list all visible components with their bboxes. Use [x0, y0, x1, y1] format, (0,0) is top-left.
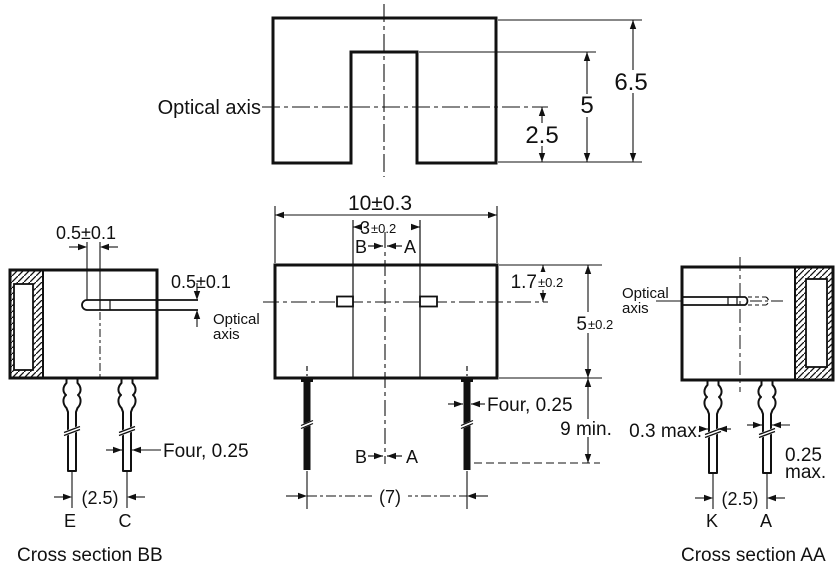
label-b-bottom: B [355, 447, 367, 467]
front-view-body-outline [275, 265, 497, 378]
front-view-extension-lines [275, 206, 602, 509]
photomicrosensor-dimension-drawing: Optical axis 6.5 5 2.5 10±0.3 [0, 0, 840, 573]
pin-label-e: E [64, 511, 76, 531]
cross-section-aa: Optical axis 0.3 max. 0.25 max. (2.5) K … [622, 257, 833, 566]
label-a-bottom: A [406, 447, 418, 467]
cross-section-bb: 0.5±0.1 0.5±0.1 Optical axis Four, 0.25 … [10, 223, 260, 566]
pin-label-a: A [760, 511, 772, 531]
aperture-tab-right [420, 297, 437, 307]
section-bb-window [14, 284, 33, 370]
section-bb-lead-pitch-label: (2.5) [81, 488, 118, 508]
pin-label-c: C [119, 511, 132, 531]
section-aa-window [806, 279, 827, 367]
dim-gap-label: 3 [360, 218, 370, 238]
aperture-tab-left [337, 297, 353, 307]
dim-lead-width-label: Four, 0.25 [487, 395, 573, 416]
dim-aperture-width-label: 0.5±0.1 [56, 223, 116, 243]
dim-height-tol-label: ±0.2 [588, 317, 613, 332]
top-view: Optical axis 6.5 5 2.5 [158, 4, 653, 177]
dim-axis-from-top-tol-label: ±0.2 [538, 275, 563, 290]
caption-cross-section-bb: Cross section BB [17, 545, 163, 566]
label-b-top: B [355, 237, 367, 257]
dim-aperture-height-label: 0.5±0.1 [171, 272, 231, 292]
pin-label-k: K [706, 511, 718, 531]
dim-height-label: 5 [576, 314, 587, 335]
dim-axis-from-top-label: 1.7 [511, 272, 537, 293]
caption-cross-section-aa: Cross section AA [681, 545, 826, 566]
technical-drawing-page: Optical axis 6.5 5 2.5 10±0.3 [0, 0, 840, 573]
front-lead-right [461, 366, 473, 470]
label-a-top: A [404, 237, 416, 257]
dim-lead-length-label: 9 min. [560, 419, 612, 440]
section-aa-lead-k [704, 376, 721, 476]
dim-gap-tol-label: ±0.2 [371, 221, 396, 236]
section-bb-lead-width-label: Four, 0.25 [163, 441, 249, 462]
dim-axis-offset-label: 2.5 [525, 122, 558, 149]
dim-lead-width-label-2: max. [785, 462, 826, 483]
section-bb-optical-label-2: axis [213, 326, 240, 343]
front-view: 10±0.3 3 ±0.2 B A 1.7 ±0.2 5 ±0.2 9 min. [263, 192, 616, 509]
dim-lead-thickness-label: 0.3 max. [629, 421, 702, 442]
dim-slot-depth-label: 5 [580, 92, 593, 119]
section-bb-lead-e [63, 374, 80, 474]
dim-width-label: 10±0.3 [348, 192, 412, 215]
section-bb-lead-c [118, 374, 135, 474]
section-aa-lead-pitch-label: (2.5) [721, 489, 758, 509]
dim-total-height-label: 6.5 [614, 69, 647, 96]
front-lead-left [301, 366, 313, 470]
section-aa-lead-a [758, 376, 775, 476]
section-aa-optical-label-2: axis [622, 300, 649, 317]
top-view-optical-axis-label: Optical axis [158, 97, 261, 119]
dim-lead-pitch-label: (7) [379, 487, 401, 507]
